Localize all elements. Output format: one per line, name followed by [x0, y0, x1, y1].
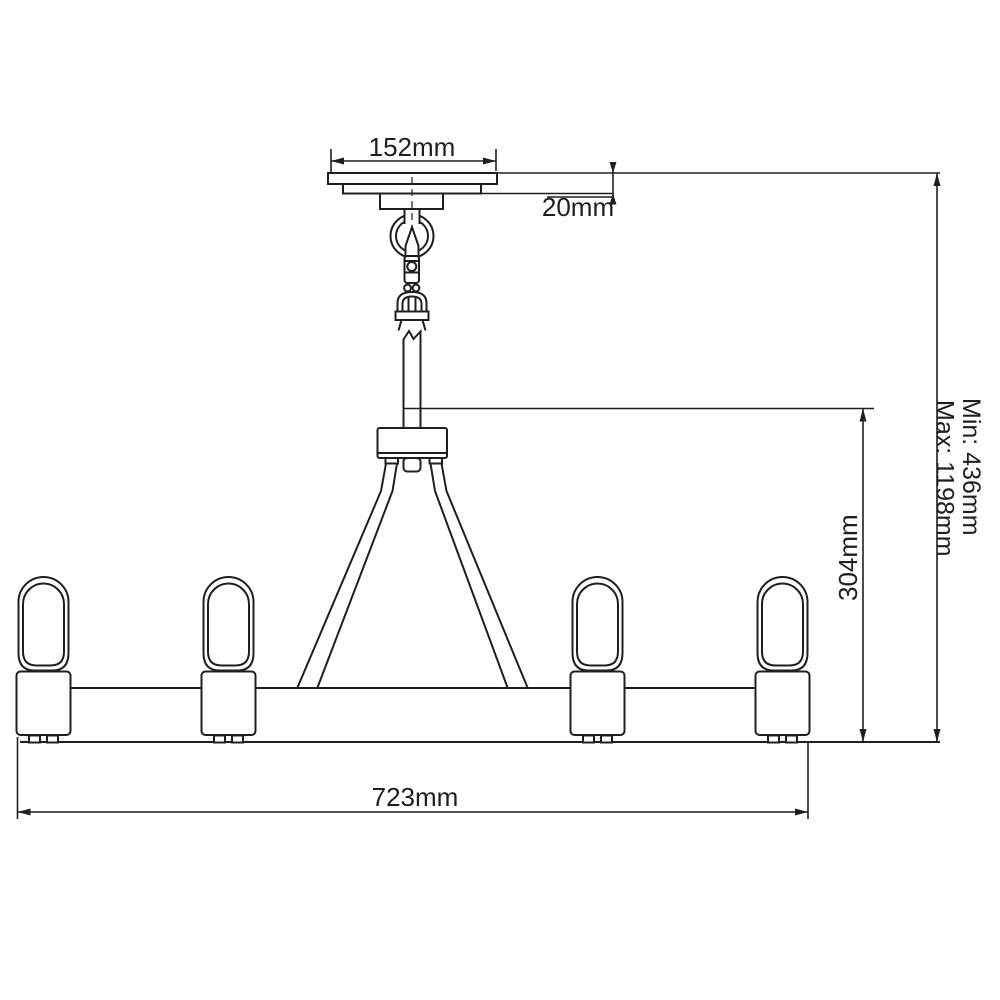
down-rod [404, 331, 421, 428]
dimension-label-body-height: 304mm [833, 514, 863, 601]
center-hub [378, 428, 448, 472]
dimension-label-max-drop: Max: 1198mm [931, 400, 959, 557]
dimension-label-min-drop: Min: 436mm [957, 398, 985, 536]
support-arms [298, 464, 528, 688]
chain-connector [404, 285, 411, 292]
dimension-canopy-height: 20mm [481, 162, 940, 222]
clevis-bell [396, 292, 429, 331]
swivel-pin [407, 262, 416, 271]
dimension-label-canopy-height: 20mm [542, 192, 614, 222]
lamp-holder-4 [756, 577, 810, 743]
pendant-hook [406, 227, 419, 256]
lamp-holder-1 [17, 577, 71, 743]
lamp-holders [17, 577, 810, 743]
dimension-bar-width: 723mm [18, 737, 809, 819]
hub-stub [404, 458, 421, 472]
left-arm [318, 464, 398, 688]
left-arm [298, 464, 387, 688]
dimension-overall-drop: Min: 436mm Max: 1198mm [931, 173, 986, 742]
dimension-canopy-width: 152mm [331, 132, 496, 172]
dimension-label-canopy-width: 152mm [369, 132, 456, 162]
diagram-canvas: 152mm 20mm 304mm Min: 436mm Max: 1198mm … [0, 0, 1000, 1000]
hub-foot-left [386, 458, 399, 464]
right-arm [431, 464, 508, 688]
lamp-holder-2 [202, 577, 256, 743]
chain-connector [413, 285, 420, 292]
chandelier-dimension-drawing: 152mm 20mm 304mm Min: 436mm Max: 1198mm … [0, 0, 1000, 1000]
lamp-holder-3 [571, 577, 625, 743]
dimension-label-bar-width: 723mm [372, 782, 459, 812]
hub-foot-right [430, 458, 443, 464]
suspension-chain [391, 209, 434, 331]
right-arm [442, 464, 528, 688]
